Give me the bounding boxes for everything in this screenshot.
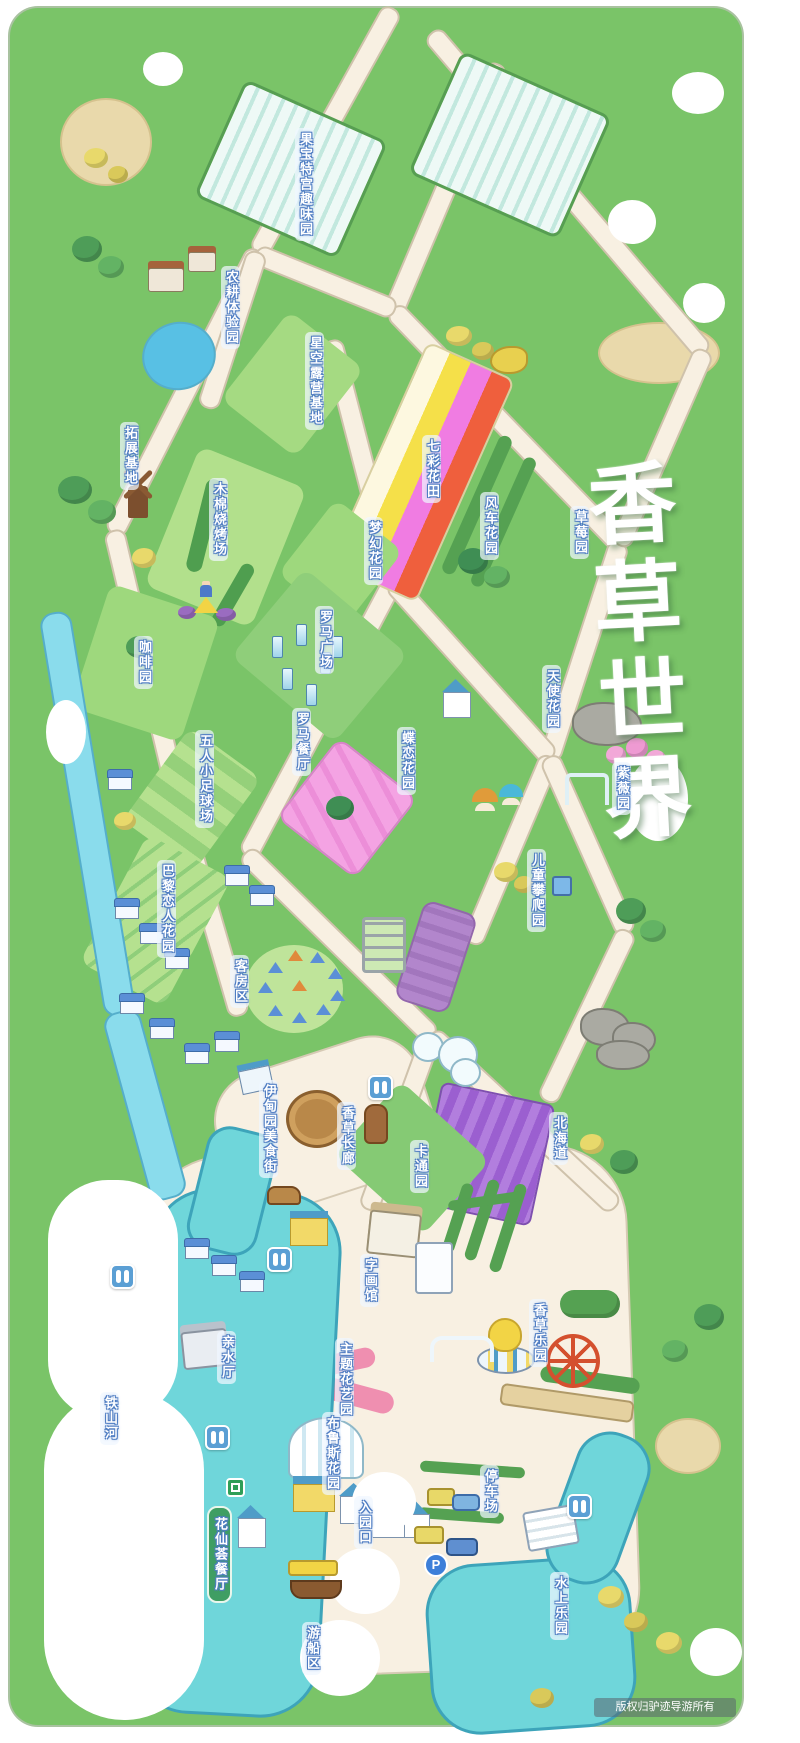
map-label-boating-area: 游船区 <box>302 1622 321 1675</box>
map-label-calligraphy-gallery: 字画馆 <box>360 1254 379 1307</box>
map-label-angel-garden: 天使花园 <box>542 665 561 733</box>
house <box>150 1025 174 1039</box>
map-label-dream-garden: 梦幻花园 <box>364 517 383 585</box>
map-label-crape-myrtle-garden: 紫薇园 <box>612 762 631 815</box>
flower-bush <box>178 606 196 619</box>
bush-yellow <box>624 1612 648 1632</box>
horse-statue <box>490 346 528 374</box>
tree <box>326 796 354 820</box>
toilet-icon <box>267 1247 292 1272</box>
toilet-icon <box>110 1264 135 1289</box>
map-label-roman-plaza: 罗马广场 <box>315 606 334 674</box>
cartoon-car <box>267 1186 301 1205</box>
church <box>443 692 471 718</box>
map-label-windmill-garden: 风车花园 <box>480 492 499 560</box>
gate-icon <box>226 1478 245 1497</box>
map-label-tieshan-river: 铁山河 <box>100 1392 119 1445</box>
house <box>185 1050 209 1064</box>
tree <box>694 1304 724 1330</box>
sand-patch <box>60 98 152 186</box>
map-label-rainbow-flower-field: 七彩花田 <box>422 435 441 503</box>
map-label-butterfly-garden: 蝶恋花园 <box>397 727 416 795</box>
map-label-guest-room-area: 客房区 <box>230 955 249 1008</box>
park-title: 香草世界 <box>574 456 691 853</box>
bush-yellow <box>656 1632 682 1654</box>
car <box>452 1494 480 1511</box>
map-label-theme-floral-garden: 主题花艺园 <box>335 1338 354 1421</box>
bush-yellow <box>530 1688 554 1708</box>
rock <box>596 1040 650 1070</box>
map-label-guobao-fun-garden: 果宝特宫趣味园 <box>295 128 314 241</box>
map-label-cartoon-garden: 卡通园 <box>410 1140 429 1193</box>
map-label-waterfront-hall: 亲水厅 <box>217 1331 236 1384</box>
farm-house <box>188 252 216 272</box>
fairy-restaurant-chapel <box>238 1518 266 1548</box>
rabbit-statue <box>364 1104 388 1144</box>
parking-icon: P <box>424 1553 448 1577</box>
flower-bush <box>216 608 236 621</box>
tree <box>610 1150 638 1174</box>
house <box>120 1000 144 1014</box>
map-label-strawberry-garden: 草莓园 <box>570 506 589 559</box>
toilet-icon <box>205 1425 230 1450</box>
map-label-vanilla-park: 香草乐园 <box>529 1299 548 1367</box>
theme-park-map: 果宝特宫趣味园 农耕体验园 星空露营基地 拓展基地 七彩花田 风车花园 草莓园 … <box>0 0 800 1743</box>
map-label-kids-climbing-garden: 儿童攀爬园 <box>527 849 546 932</box>
map-label-water-park: 水上乐园 <box>550 1572 569 1640</box>
house <box>185 1245 209 1259</box>
map-label-starry-camping-base: 星空露营基地 <box>305 332 324 430</box>
yurt <box>450 1058 481 1087</box>
tree <box>662 1340 688 1362</box>
bush-yellow <box>114 812 136 830</box>
house <box>215 1038 239 1052</box>
map-label-farming-experience: 农耕体验园 <box>221 266 240 349</box>
house <box>108 776 132 790</box>
map-edge-cutout <box>48 1180 178 1420</box>
hedge-ball <box>560 1290 620 1318</box>
map-label-coffee-garden: 咖啡园 <box>134 636 153 689</box>
bush-yellow <box>108 166 128 183</box>
map-label-vanilla-corridor: 香草长廊 <box>337 1102 356 1170</box>
roman-column <box>296 624 307 646</box>
map-edge-cutout <box>683 283 725 323</box>
greenhouse-frame <box>362 917 406 973</box>
bush-yellow <box>132 548 156 568</box>
house <box>250 892 274 906</box>
house <box>240 1278 264 1292</box>
tree <box>484 566 510 588</box>
tree <box>88 500 116 524</box>
map-label-five-a-side-soccer: 五人小足球场 <box>195 730 214 828</box>
map-edge-cutout <box>44 1390 204 1720</box>
tree <box>98 256 124 278</box>
gallery-building <box>366 1209 422 1258</box>
map-label-kapok-bbq: 木棉烧烤场 <box>209 478 228 561</box>
farm-house <box>148 268 184 292</box>
gallery-tower <box>415 1242 453 1294</box>
map-edge-cutout <box>690 1628 742 1676</box>
map-label-flower-fairy-restaurant: 花仙荟餐厅 <box>207 1506 232 1603</box>
sand-patch <box>655 1418 721 1474</box>
bush-yellow <box>446 326 472 346</box>
shuttle-bus <box>427 1488 455 1506</box>
bush-yellow <box>84 148 108 168</box>
map-label-roman-restaurant: 罗马餐厅 <box>292 708 311 776</box>
copyright-notice: 版权归驴迹导游所有 <box>594 1698 736 1717</box>
map-edge-cutout <box>672 72 724 114</box>
yellow-shop <box>290 1218 328 1246</box>
roman-column <box>272 636 283 658</box>
shuttle-bus <box>414 1526 444 1544</box>
bush-yellow <box>494 862 518 882</box>
tree <box>58 476 92 504</box>
tree <box>640 920 666 942</box>
ferris-wheel <box>546 1334 600 1388</box>
bush-yellow <box>580 1134 604 1154</box>
snow-white-statue <box>200 585 212 597</box>
car <box>446 1538 478 1556</box>
toilet-icon <box>567 1494 592 1519</box>
roman-column <box>282 668 293 690</box>
house <box>225 872 249 886</box>
map-edge-cutout <box>46 700 86 764</box>
map-label-parking-lot: 停车场 <box>480 1465 499 1518</box>
map-label-entrance: 入园口 <box>354 1496 373 1549</box>
map-label-hokkaido: 北海道 <box>549 1112 568 1165</box>
house <box>115 905 139 919</box>
map-label-bruce-garden: 布鲁斯花园 <box>322 1412 341 1495</box>
house <box>212 1262 236 1276</box>
toilet-icon <box>368 1075 393 1100</box>
tree <box>72 236 102 262</box>
roman-column <box>306 684 317 706</box>
map-edge-cutout <box>143 52 183 86</box>
bush-yellow <box>598 1586 624 1608</box>
map-label-expansion-base: 拓展基地 <box>120 422 139 490</box>
paddle-boat <box>288 1560 338 1576</box>
map-label-paris-lovers-garden: 巴黎恋人花园 <box>157 860 176 958</box>
entrance-arch <box>430 1336 494 1362</box>
map-label-eden-food-street: 伊甸园美食街 <box>259 1080 278 1178</box>
paddle-boat-hull <box>290 1580 342 1599</box>
tree <box>616 898 646 924</box>
climbing-cube <box>552 876 572 896</box>
map-edge-cutout <box>608 200 656 244</box>
